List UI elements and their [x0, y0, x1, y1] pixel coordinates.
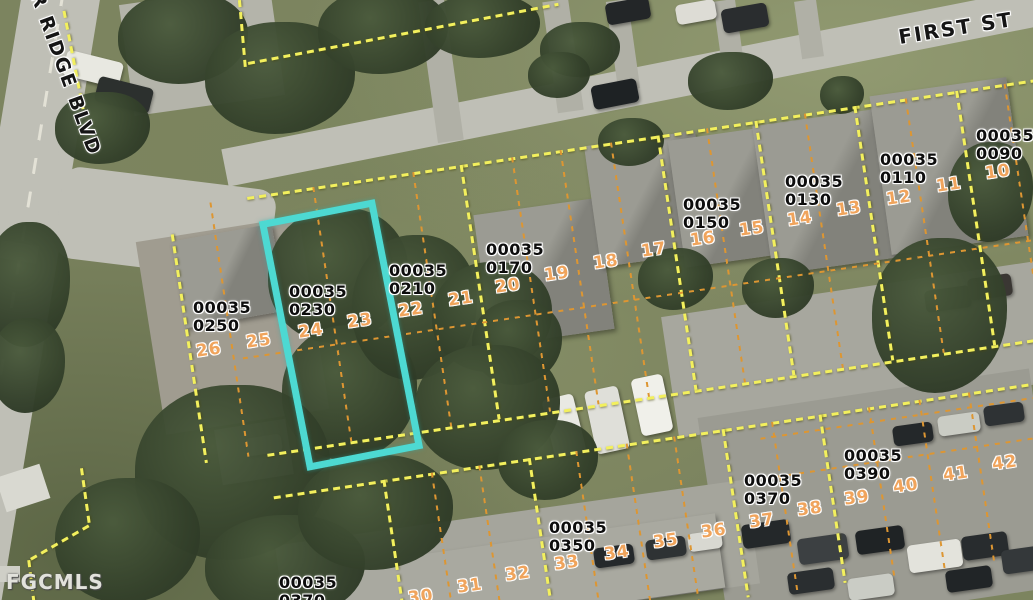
parcel-boundary-line	[656, 135, 697, 390]
parcel-book: 00035	[389, 262, 447, 280]
parcel-id-label: 000350350	[549, 519, 607, 555]
lot-line	[626, 443, 653, 600]
lot-number: 10	[984, 160, 1012, 183]
lot-number: 41	[942, 462, 970, 485]
lot-number: 19	[543, 262, 571, 285]
lot-line	[706, 128, 746, 382]
parcel-book: 00035	[289, 283, 347, 301]
lot-number: 38	[796, 497, 824, 520]
parcel-book: 00035	[279, 574, 337, 592]
parcel-id-label: 000350370	[279, 574, 337, 600]
parcel-page: 0110	[880, 169, 938, 187]
parcel-id-label: 000350230	[289, 283, 347, 319]
car	[604, 0, 651, 26]
lot-line	[431, 473, 458, 600]
parcel-boundary-line	[754, 121, 795, 376]
lot-number: 30	[407, 585, 435, 600]
lot-number: 16	[689, 227, 717, 250]
lot-line	[868, 407, 895, 575]
lot-number: 31	[456, 574, 484, 597]
lot-number: 18	[592, 250, 620, 273]
parcel-book: 00035	[683, 196, 741, 214]
aerial-parcel-map: 000350250 000350230 000350210 000350170 …	[0, 0, 1033, 600]
parcel-page: 0230	[289, 301, 347, 319]
lot-number: 22	[397, 298, 425, 321]
parcel-book: 00035	[744, 472, 802, 490]
lot-number: 20	[494, 274, 522, 297]
lot-number: 35	[652, 529, 680, 552]
lot-number: 26	[195, 338, 223, 361]
lot-number: 11	[935, 173, 963, 196]
parcel-boundary-line	[819, 414, 847, 583]
parcel-page: 0250	[193, 317, 251, 335]
lot-number: 24	[297, 319, 325, 342]
parcel-page: 0370	[744, 490, 802, 508]
tree	[688, 52, 773, 110]
lot-number: 21	[447, 287, 475, 310]
lot-number: 17	[640, 238, 668, 261]
lot-line	[673, 436, 700, 600]
parcel-id-label: 000350250	[193, 299, 251, 335]
lot-number: 32	[504, 562, 532, 585]
tree	[0, 318, 65, 413]
lot-number: 15	[738, 217, 766, 240]
lot-line	[804, 113, 844, 367]
parcel-boundary-line	[722, 429, 750, 598]
parcel-id-label: 000350370	[744, 472, 802, 508]
lot-number: 36	[700, 519, 728, 542]
parcel-id-label: 000350210	[389, 262, 447, 298]
lot-number: 12	[885, 186, 913, 209]
lot-number: 13	[835, 197, 863, 220]
car	[675, 0, 718, 25]
lot-line	[968, 392, 995, 560]
lot-number: 25	[245, 329, 273, 352]
lot-line	[760, 389, 1033, 440]
parcel-boundary-line	[382, 480, 410, 600]
parcel-id-label: 000350090	[976, 127, 1033, 163]
parcel-id-label: 000350110	[880, 151, 938, 187]
lot-line	[1004, 84, 1033, 338]
parcel-book: 00035	[844, 447, 902, 465]
lot-number: 37	[748, 509, 776, 532]
lot-number: 34	[603, 541, 631, 564]
parcel-book: 00035	[549, 519, 607, 537]
lot-number: 23	[346, 309, 374, 332]
parcel-book: 00035	[486, 241, 544, 259]
lot-number: 42	[991, 451, 1019, 474]
lot-line	[905, 98, 945, 352]
parcel-book: 00035	[880, 151, 938, 169]
fgcmls-watermark: FGCMLS	[6, 570, 104, 594]
parcel-page: 0370	[279, 592, 337, 600]
lot-number: 40	[892, 474, 920, 497]
parcel-boundary-line	[853, 106, 894, 361]
parcel-id-label: 000350170	[486, 241, 544, 277]
parcel-book: 00035	[785, 173, 843, 191]
lot-line	[918, 400, 945, 568]
lot-number: 33	[553, 551, 581, 574]
parcel-book: 00035	[976, 127, 1033, 145]
lot-number: 14	[786, 207, 814, 230]
lot-number: 39	[843, 486, 871, 509]
parcel-book: 00035	[193, 299, 251, 317]
parcel-page: 0210	[389, 280, 447, 298]
